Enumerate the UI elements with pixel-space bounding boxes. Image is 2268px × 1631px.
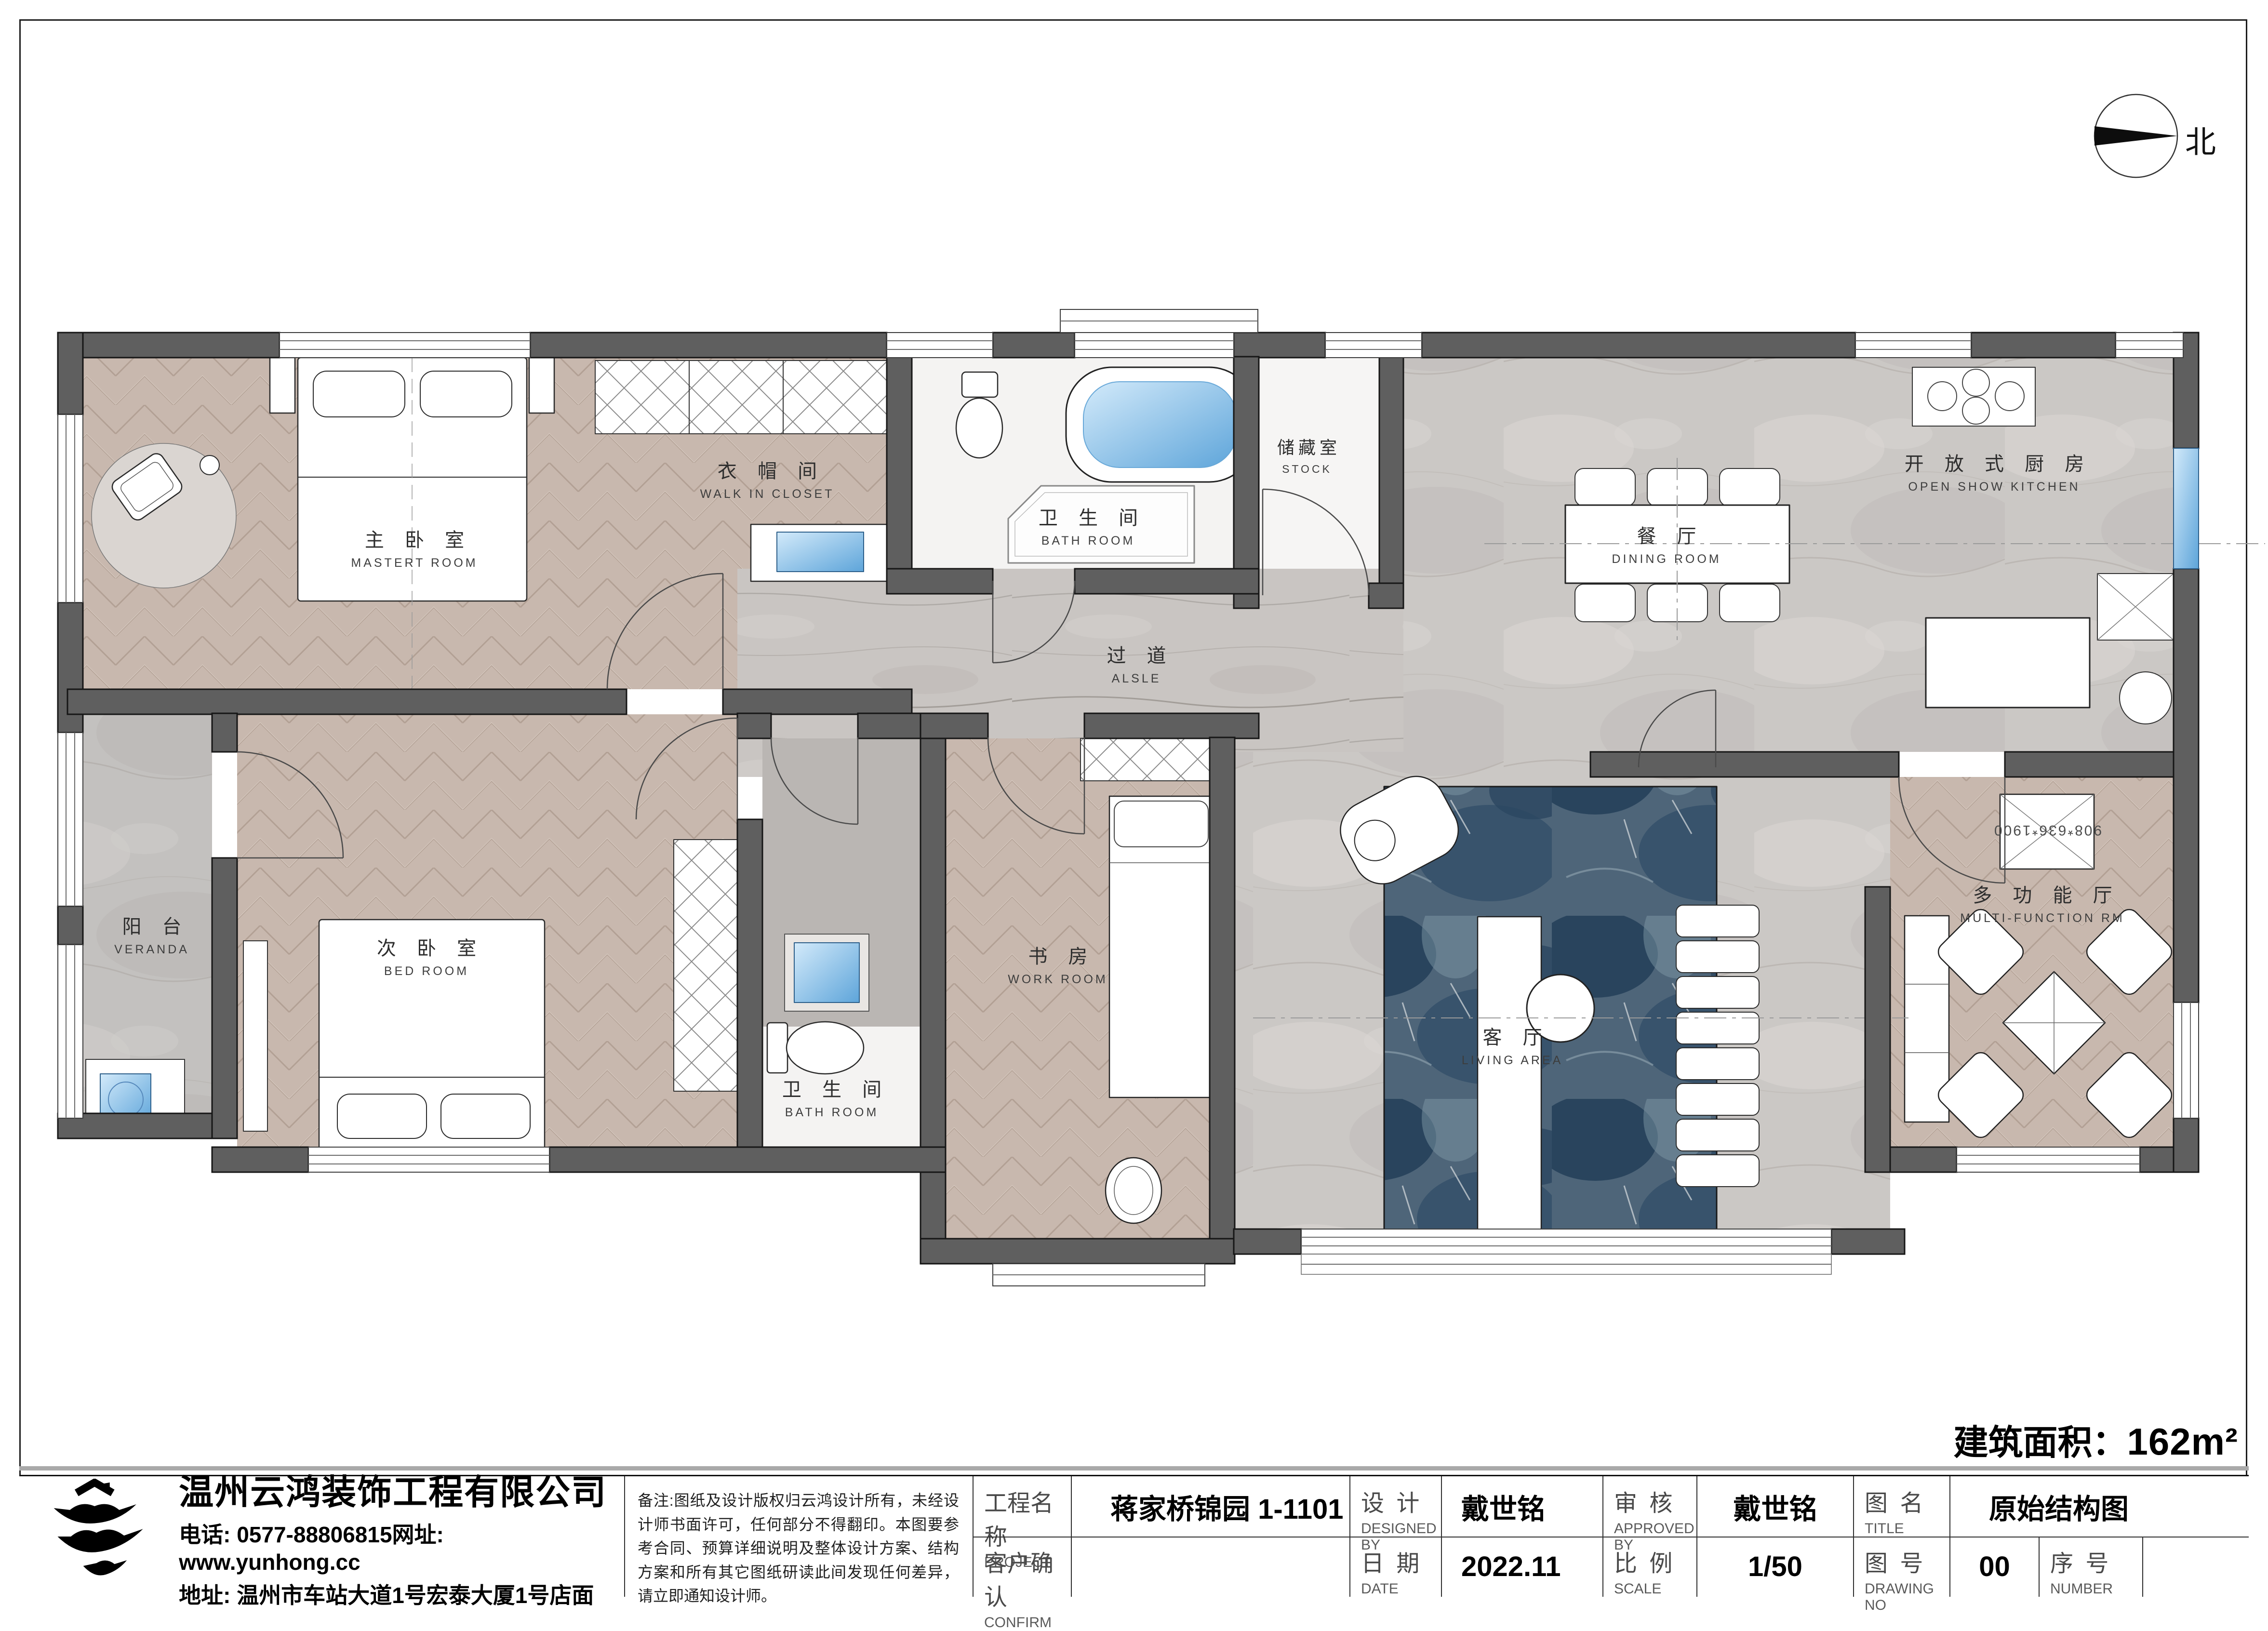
company-phone: 电话: 0577-88806815网址: www.yunhong.cc [179,1517,624,1575]
cabinet-dimension-text: 908*636*1900 [1993,822,2102,838]
title-band: 温州云鸿装饰工程有限公司 电话: 0577-88806815网址: www.yu… [19,1475,2249,1595]
confirm-value [1071,1537,1349,1597]
notes-block: 备注:图纸及设计版权归云鸿设计所有，未经设计师书面许可，任何部分不得翻印。本图要… [624,1476,973,1597]
scale-label: 比 例 SCALE [1602,1537,1696,1597]
shower-area [1008,486,1194,563]
number-label: 序 号 NUMBER [2039,1537,2142,1597]
vanity-sink [751,524,892,581]
designed-by-value: 戴世铭 [1441,1476,1602,1537]
building-area-label: 建筑面积： [1954,1414,2127,1465]
company-address: 地址: 温州市车站大道1号宏泰大厦1号店面 [179,1578,624,1610]
floor-veranda-tint [83,714,212,1113]
building-area-value: 162m² [2127,1420,2238,1464]
building-area-note: 建筑面积： 162m² [1954,1414,2238,1465]
kitchen-cabinet [2097,574,2174,640]
company-logo [43,1479,157,1594]
living-side-table [1527,975,1594,1042]
bedroom2-bed [319,920,545,1150]
bedroom2-tv-bench [243,941,267,1131]
bath2-sink [785,934,869,1011]
date-value: 2022.11 [1441,1537,1602,1597]
drawing-no-value: 00 [1949,1537,2039,1597]
company-name: 温州云鸿装饰工程有限公司 [179,1464,624,1514]
cooktop [1912,367,2035,426]
approved-by-value: 戴世铭 [1696,1476,1853,1537]
title-band-midline [973,1537,2249,1537]
project-value: 蒋家桥锦园 1-1101 [1071,1476,1349,1537]
number-value [2142,1537,2249,1597]
floor-stock [1259,358,1379,584]
designed-by-label: 设 计 DESIGNED BY [1349,1476,1441,1537]
bath2-toilet [767,1022,864,1074]
company-block: 温州云鸿装饰工程有限公司 电话: 0577-88806815网址: www.yu… [19,1476,624,1597]
drawing-title-value: 原始结构图 [1949,1476,2249,1537]
north-compass-icon [2095,94,2177,177]
project-label: 工程名称 PROJECT [973,1476,1071,1537]
kitchen-stool [2120,672,2172,724]
scale-value: 1/50 [1696,1537,1853,1597]
toilet-top [956,372,1002,458]
glass-panel [2174,448,2199,569]
living-tv-cabinet [1478,917,1541,1241]
bathtub [1066,367,1255,482]
kitchen-island [1926,618,2090,708]
workroom-closet [1081,738,1210,781]
date-label: 日 期 DATE [1349,1537,1441,1597]
closet-wardrobes [595,361,889,434]
drawing-title-label: 图 名 TITLE [1853,1476,1949,1537]
bedroom2-wardrobe [674,840,739,1091]
workroom-daybed [1109,796,1213,1097]
floor-plan-svg [0,0,2268,1604]
north-label: 北 [2185,118,2216,162]
master-rug-chair [92,443,236,588]
confirm-label: 客户确认 CONFIRM [973,1537,1071,1597]
drawing-no-label: 图 号 DRAWING NO [1853,1537,1949,1597]
workroom-fan [1106,1158,1161,1223]
approved-by-label: 审 核 APPROVED BY [1602,1476,1696,1537]
